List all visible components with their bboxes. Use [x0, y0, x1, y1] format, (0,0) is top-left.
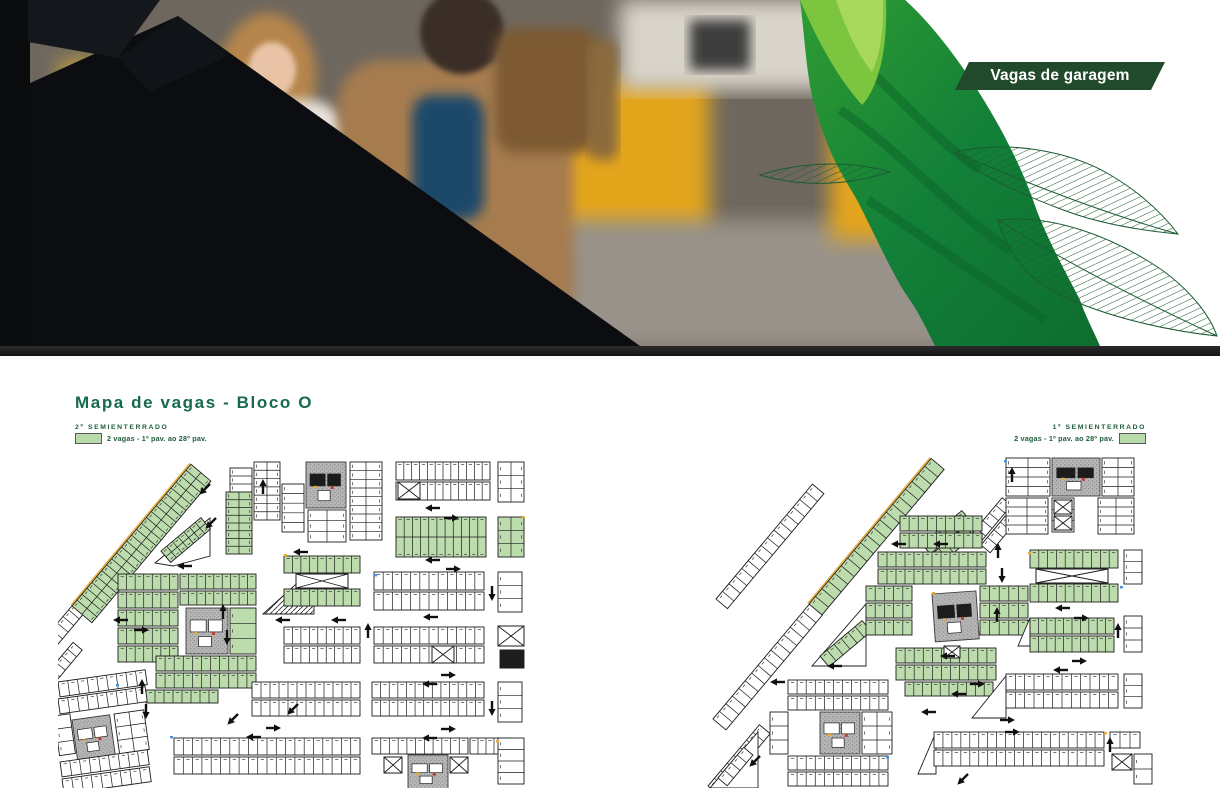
green-leaf-artwork	[0, 0, 1220, 346]
legend-right: 2 vagas - 1º pav. ao 28º pav.	[1014, 433, 1146, 444]
parking-map-1st-semienterrado	[700, 456, 1158, 788]
parking-map-2nd-semienterrado	[58, 456, 566, 788]
legend-left: 2 vagas - 1º pav. ao 28º pav.	[75, 433, 207, 444]
hero-bottom-bar	[0, 346, 1220, 356]
legend-text-left: 2 vagas - 1º pav. ao 28º pav.	[107, 434, 207, 443]
page-banner: Vagas de garagem	[955, 62, 1165, 90]
legend-swatch-green	[1119, 433, 1146, 444]
hero-section: Vagas de garagem	[0, 0, 1220, 346]
floor-label-right: 1º SEMIENTERRADO	[1053, 424, 1146, 431]
legend-swatch-green	[75, 433, 102, 444]
brochure-page: Vagas de garagem Mapa de vagas - Bloco O…	[0, 0, 1220, 788]
section-title: Mapa de vagas - Bloco O	[75, 393, 313, 413]
banner-label: Vagas de garagem	[990, 67, 1129, 85]
legend-text-right: 2 vagas - 1º pav. ao 28º pav.	[1014, 434, 1114, 443]
floor-label-left: 2º SEMIENTERRADO	[75, 424, 168, 431]
